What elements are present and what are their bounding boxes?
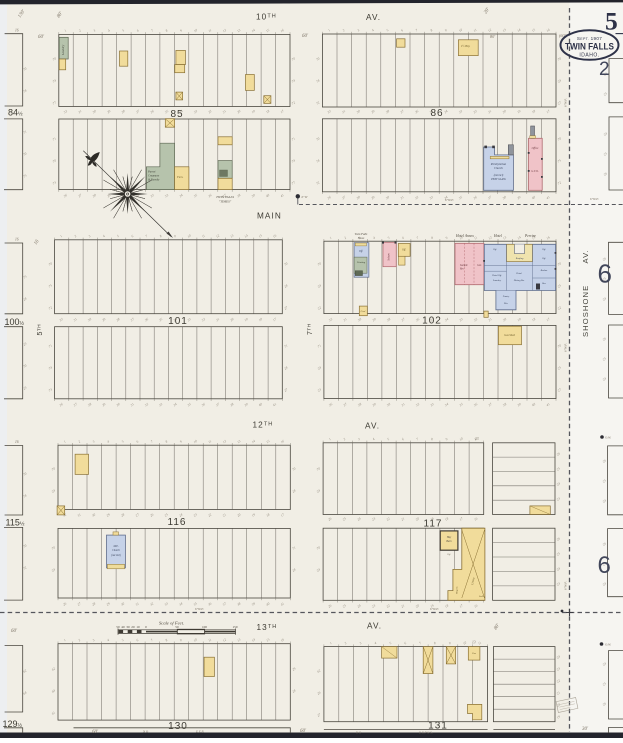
svg-text:Furn.: Furn. bbox=[176, 176, 184, 179]
svg-text:0: 0 bbox=[145, 625, 147, 629]
svg-text:50: 50 bbox=[175, 625, 179, 629]
svg-text:Saloon: Saloon bbox=[388, 253, 391, 261]
svg-text:Off.: Off. bbox=[359, 250, 364, 253]
svg-text:30': 30' bbox=[582, 727, 589, 732]
svg-text:60': 60' bbox=[92, 730, 99, 735]
svg-text:6"W.P.: 6"W.P. bbox=[564, 581, 568, 590]
svg-text:Gas Shed: Gas Shed bbox=[504, 334, 515, 337]
svg-text:60': 60' bbox=[300, 729, 307, 734]
svg-text:TWIN FALLS: TWIN FALLS bbox=[565, 42, 614, 52]
svg-text:(not incl): (not incl) bbox=[494, 174, 504, 177]
svg-text:40: 40 bbox=[121, 625, 125, 629]
svg-text:80': 80' bbox=[490, 34, 495, 39]
svg-text:60': 60' bbox=[302, 34, 309, 39]
svg-text:SEPT. 1907: SEPT. 1907 bbox=[577, 36, 602, 41]
svg-text:MAIN: MAIN bbox=[257, 212, 282, 221]
svg-text:Off.: Off. bbox=[542, 248, 546, 251]
svg-text:6"W.P.: 6"W.P. bbox=[195, 607, 204, 611]
svg-text:20: 20 bbox=[131, 625, 135, 629]
svg-text:2: 2 bbox=[599, 59, 610, 80]
svg-text:Off.: Off. bbox=[402, 249, 407, 252]
svg-text:Off.: Off. bbox=[493, 248, 497, 251]
svg-text:Din.: Din. bbox=[503, 302, 509, 305]
svg-text:Perrine: Perrine bbox=[524, 234, 536, 238]
svg-text:1½ Hay: 1½ Hay bbox=[461, 45, 471, 48]
svg-text:60': 60' bbox=[38, 35, 45, 40]
svg-text:6"W.P.: 6"W.P. bbox=[564, 343, 568, 352]
svg-text:150: 150 bbox=[232, 625, 237, 629]
svg-text:IDAHO.: IDAHO. bbox=[579, 53, 599, 59]
svg-text:Barn: Barn bbox=[446, 540, 452, 543]
svg-text:Printing: Printing bbox=[356, 261, 366, 264]
svg-text:50: 50 bbox=[116, 625, 120, 629]
svg-text:10: 10 bbox=[136, 625, 140, 629]
svg-text:M.E.: M.E. bbox=[112, 545, 118, 548]
svg-text:Church: Church bbox=[112, 549, 120, 552]
svg-text:13: 13 bbox=[475, 437, 479, 441]
svg-text:N O: N O bbox=[355, 730, 362, 734]
svg-text:130: 130 bbox=[168, 721, 188, 732]
svg-text:16: 16 bbox=[15, 440, 19, 444]
svg-text:Laundry: Laundry bbox=[61, 44, 65, 56]
svg-text:AV.: AV. bbox=[581, 249, 590, 263]
svg-text:Gen: Gen bbox=[477, 264, 482, 267]
svg-text:Hay: Hay bbox=[446, 536, 452, 539]
svg-text:Off.: Off. bbox=[542, 257, 546, 260]
svg-text:6"W.P.: 6"W.P. bbox=[564, 98, 568, 107]
svg-text:Office: Office bbox=[532, 147, 540, 150]
svg-text:SHOSHONE: SHOSHONE bbox=[581, 285, 590, 337]
svg-text:N O: N O bbox=[142, 729, 149, 733]
svg-text:6: 6 bbox=[598, 259, 612, 289]
svg-text:100: 100 bbox=[202, 625, 207, 629]
svg-text:6: 6 bbox=[598, 552, 611, 579]
svg-text:AV.: AV. bbox=[365, 422, 380, 431]
svg-text:(not incl): (not incl) bbox=[111, 554, 121, 557]
svg-text:116: 116 bbox=[168, 517, 187, 528]
svg-text:E X P.: E X P. bbox=[195, 729, 204, 733]
svg-text:Roofing: Roofing bbox=[515, 257, 524, 260]
svg-text:Off.: Off. bbox=[447, 553, 451, 556]
svg-text:Hotel: Hotel bbox=[493, 234, 502, 238]
svg-text:6"W.P.: 6"W.P. bbox=[590, 197, 599, 201]
svg-text:Rm: Rm bbox=[459, 268, 464, 271]
svg-text:16: 16 bbox=[15, 29, 19, 33]
svg-text:G.T.O.: G.T.O. bbox=[531, 170, 539, 173]
svg-text:Scale of Feet.: Scale of Feet. bbox=[159, 621, 184, 626]
svg-text:16: 16 bbox=[15, 238, 19, 242]
svg-text:Creamery: Creamery bbox=[148, 175, 160, 178]
svg-text:Church: Church bbox=[494, 166, 503, 170]
svg-text:Pantry: Pantry bbox=[502, 295, 510, 298]
svg-text:Wagons: Wagons bbox=[456, 586, 459, 594]
svg-text:E X P O S.: E X P O S. bbox=[418, 730, 433, 734]
svg-text:Bar: Bar bbox=[542, 282, 546, 285]
svg-text:Laundry: Laundry bbox=[492, 279, 502, 282]
svg-text:30: 30 bbox=[126, 625, 130, 629]
svg-text:Parrot: Parrot bbox=[147, 171, 156, 174]
svg-text:O.W.: O.W. bbox=[605, 643, 611, 647]
svg-text:News: News bbox=[357, 236, 365, 240]
svg-text:13: 13 bbox=[472, 641, 476, 645]
svg-text:O.W.: O.W. bbox=[605, 436, 611, 440]
svg-text:Hotel Off.: Hotel Off. bbox=[491, 274, 502, 277]
svg-text:101: 101 bbox=[168, 316, 188, 327]
svg-text:Barber: Barber bbox=[541, 269, 548, 272]
svg-text:86: 86 bbox=[430, 108, 443, 119]
svg-text:5: 5 bbox=[605, 6, 618, 35]
svg-text:Stalls: Stalls bbox=[479, 595, 484, 598]
svg-text:TWIN FALLS: TWIN FALLS bbox=[216, 195, 234, 199]
svg-text:"TIMES": "TIMES" bbox=[219, 200, 232, 204]
svg-text:Hotel: Hotel bbox=[515, 272, 522, 275]
svg-text:60': 60' bbox=[11, 629, 18, 634]
svg-text:Dining Rm: Dining Rm bbox=[513, 279, 525, 282]
svg-text:AV.: AV. bbox=[366, 13, 381, 22]
svg-text:AV.: AV. bbox=[367, 622, 382, 631]
svg-text:PENT GLASS: PENT GLASS bbox=[490, 178, 506, 181]
svg-text:Coal: Coal bbox=[361, 310, 366, 313]
svg-text:Hotel Annex: Hotel Annex bbox=[455, 234, 474, 238]
